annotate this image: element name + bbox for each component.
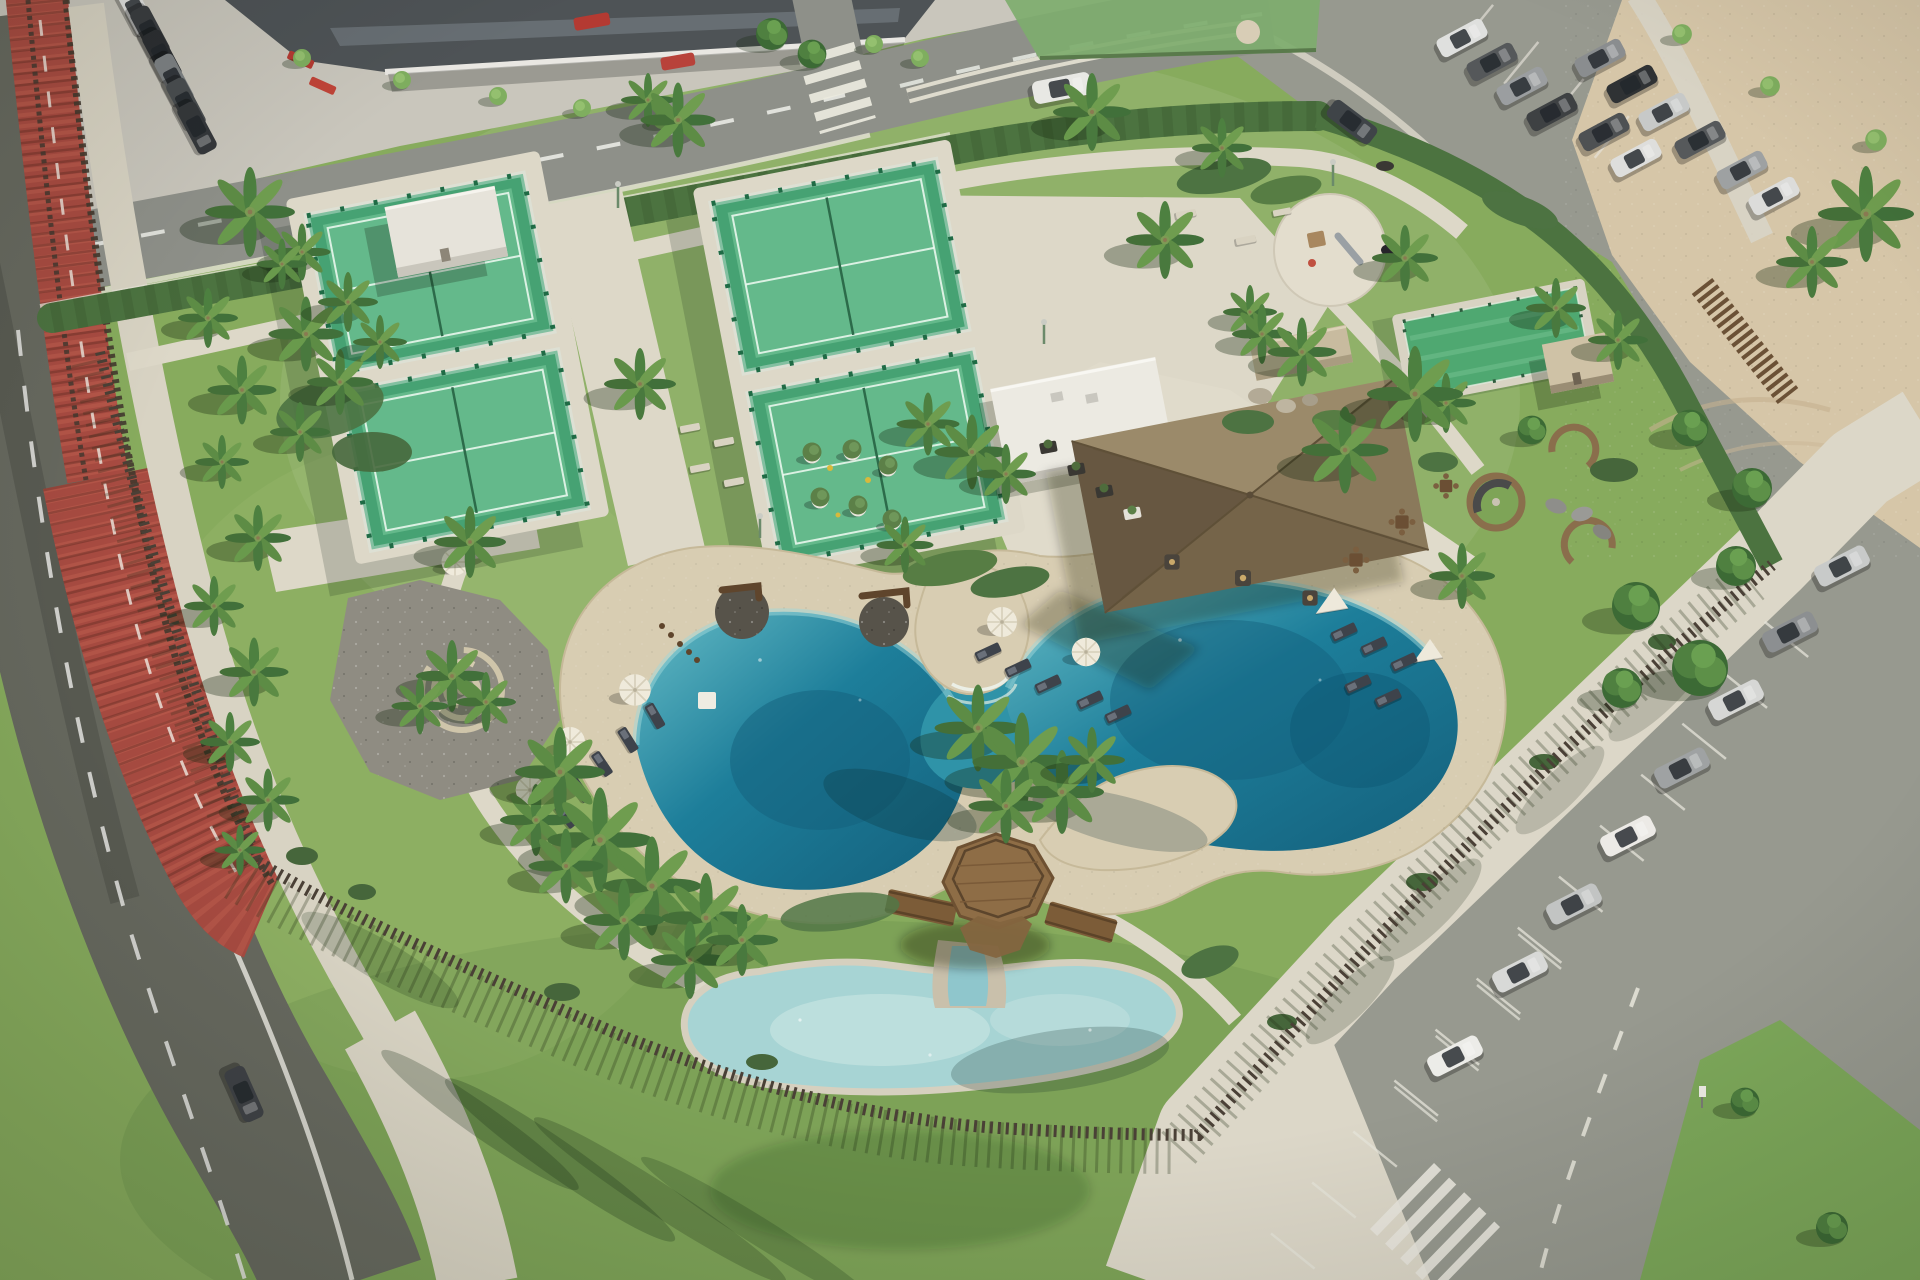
aerial-photo-svg: Aerial view of a resort amenity park	[0, 0, 1920, 1280]
vignette	[0, 0, 1920, 1280]
aerial-photo: Aerial view of a resort amenity park	[0, 0, 1920, 1280]
